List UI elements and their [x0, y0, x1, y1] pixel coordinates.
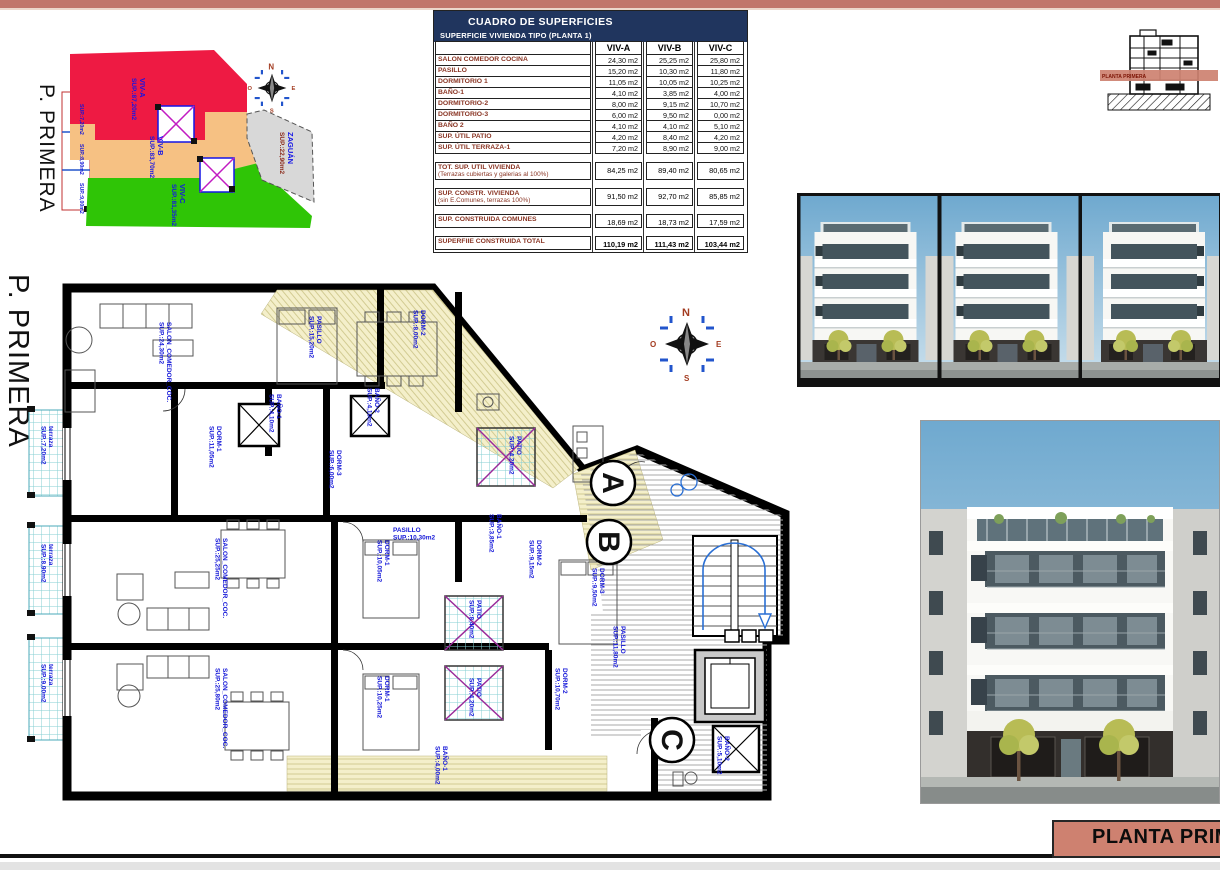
summary-value: 103,44 m2 [697, 236, 744, 250]
sheet-title-box: PLANTA PRIMERA [1052, 820, 1220, 858]
svg-text:S: S [270, 108, 274, 114]
room-label: SUP.:8,90m2 [78, 144, 84, 175]
table-divider [694, 41, 695, 252]
svg-text:SUP.:81,35m2: SUP.:81,35m2 [170, 184, 177, 227]
svg-text:E: E [716, 340, 722, 349]
room-label: SUP.:9,00m2 [78, 183, 84, 214]
summary-label: SUP. CONSTR. VIVIENDA(sin E.Comunes, ter… [435, 188, 591, 206]
summary-value: 92,70 m2 [646, 188, 693, 206]
svg-text:B: B [592, 531, 625, 553]
render-view-right [1082, 196, 1219, 378]
elevator [695, 650, 765, 722]
summary-value: 111,43 m2 [646, 236, 693, 250]
plan-compass-icon: N E O S [650, 307, 722, 383]
surface-table-grid: VIV-AVIV-BVIV-CSALON COMEDOR COCINA24,30… [434, 41, 747, 252]
table-divider [592, 41, 593, 252]
svg-text:SUP.:22,90m2: SUP.:22,90m2 [278, 132, 285, 175]
building-section-thumb: PLANTA PRIMERA [1100, 28, 1218, 120]
floor-plan: A B C N E O S SALON_COMEDOR_COC.SUP.:24,… [25, 278, 790, 805]
elevation-renders [797, 193, 1220, 387]
summary-label: SUP. CONSTRUIDA COMUNES [435, 214, 591, 228]
room-label: SUP.:7,20m2 [78, 104, 84, 135]
cell-value: 7,20 m2 [595, 142, 642, 154]
summary-label: SUPERFIIE CONSTRUIDA TOTAL [435, 236, 591, 250]
svg-text:E: E [291, 86, 295, 92]
table-row: SUP. CONSTR. VIVIENDA(sin E.Comunes, ter… [435, 188, 746, 206]
svg-text:C: C [655, 729, 688, 751]
table-row: SUPERFIIE CONSTRUIDA TOTAL110,19 m2111,4… [435, 236, 746, 250]
table-row: VIV-AVIV-BVIV-C [435, 41, 746, 55]
site-street-labels: SUP.:7,20m2SUP.:8,90m2SUP.:9,00m2 [78, 104, 84, 214]
svg-text:VIV-B: VIV-B [156, 136, 165, 156]
unit-marker-b: B [587, 520, 631, 564]
svg-text:SUP.:83,70m2: SUP.:83,70m2 [148, 136, 155, 179]
svg-text:O: O [650, 340, 656, 349]
main-building-render [920, 420, 1220, 804]
table-subtitle: SUPERFICIE VIVIENDA TIPO (PLANTA 1) [440, 31, 741, 40]
summary-label: TOT. SUP. UTIL VIVIENDA(Terrazas cubiert… [435, 162, 591, 180]
table-row: SUP. ÚTIL TERRAZA-17,20 m28,90 m29,00 m2 [435, 142, 746, 154]
summary-value: 80,65 m2 [697, 162, 744, 180]
summary-value: 17,59 m2 [697, 214, 744, 228]
render-view-front [941, 196, 1082, 378]
windows [63, 428, 72, 716]
cell-value: 8,90 m2 [646, 142, 693, 154]
table-title: CUADRO DE SUPERFICIES [440, 14, 741, 31]
svg-text:ZAGUÁN: ZAGUÁN [286, 132, 295, 164]
table-row: TOT. SUP. UTIL VIVIENDA(Terrazas cubiert… [435, 162, 746, 180]
unit-marker-a: A [591, 461, 635, 505]
svg-text:S: S [684, 374, 690, 383]
svg-text:VIV-C: VIV-C [178, 184, 187, 204]
bottom-accent-strip [0, 862, 1220, 870]
svg-text:VIV-A: VIV-A [138, 78, 147, 98]
summary-value: 18,73 m2 [646, 214, 693, 228]
summary-value: 89,40 m2 [646, 162, 693, 180]
summary-value: 110,19 m2 [595, 236, 642, 250]
site-compass-icon: N E O S [248, 62, 296, 114]
svg-text:N: N [268, 62, 274, 71]
summary-value: 85,85 m2 [697, 188, 744, 206]
column-header: VIV-B [646, 41, 693, 55]
row-label: SUP. ÚTIL TERRAZA-1 [435, 142, 591, 154]
render-view-left [800, 196, 941, 378]
column-header: VIV-C [697, 41, 744, 55]
surface-table-header: CUADRO DE SUPERFICIES SUPERFICIE VIVIEND… [434, 11, 747, 42]
summary-value: 18,69 m2 [595, 214, 642, 228]
summary-value: 84,25 m2 [595, 162, 642, 180]
surface-table: CUADRO DE SUPERFICIES SUPERFICIE VIVIEND… [433, 10, 748, 253]
svg-text:N: N [682, 307, 690, 319]
column-header-empty [435, 41, 591, 55]
section-band-label: PLANTA PRIMERA [1102, 74, 1147, 80]
main-building [967, 507, 1173, 781]
table-divider [643, 41, 644, 252]
svg-text:O: O [248, 86, 253, 92]
plan-sheet: P. PRIMERA P. PRIMERA [0, 0, 1220, 870]
table-row: SUP. CONSTRUIDA COMUNES18,69 m218,73 m21… [435, 214, 746, 228]
unit-marker-c: C [650, 718, 694, 762]
top-accent-strip [0, 0, 1220, 10]
svg-text:SUP.:87,20m2: SUP.:87,20m2 [130, 78, 137, 121]
site-patio-2 [197, 156, 235, 192]
meter-boxes [725, 630, 773, 642]
column-header: VIV-A [595, 41, 642, 55]
sheet-bottom-rule [0, 854, 1220, 858]
site-key-plan: VIV-A SUP.:87,20m2 VIV-B SUP.:83,70m2 VI… [0, 20, 340, 250]
svg-text:A: A [596, 472, 629, 494]
summary-value: 91,50 m2 [595, 188, 642, 206]
cell-value: 9,00 m2 [697, 142, 744, 154]
